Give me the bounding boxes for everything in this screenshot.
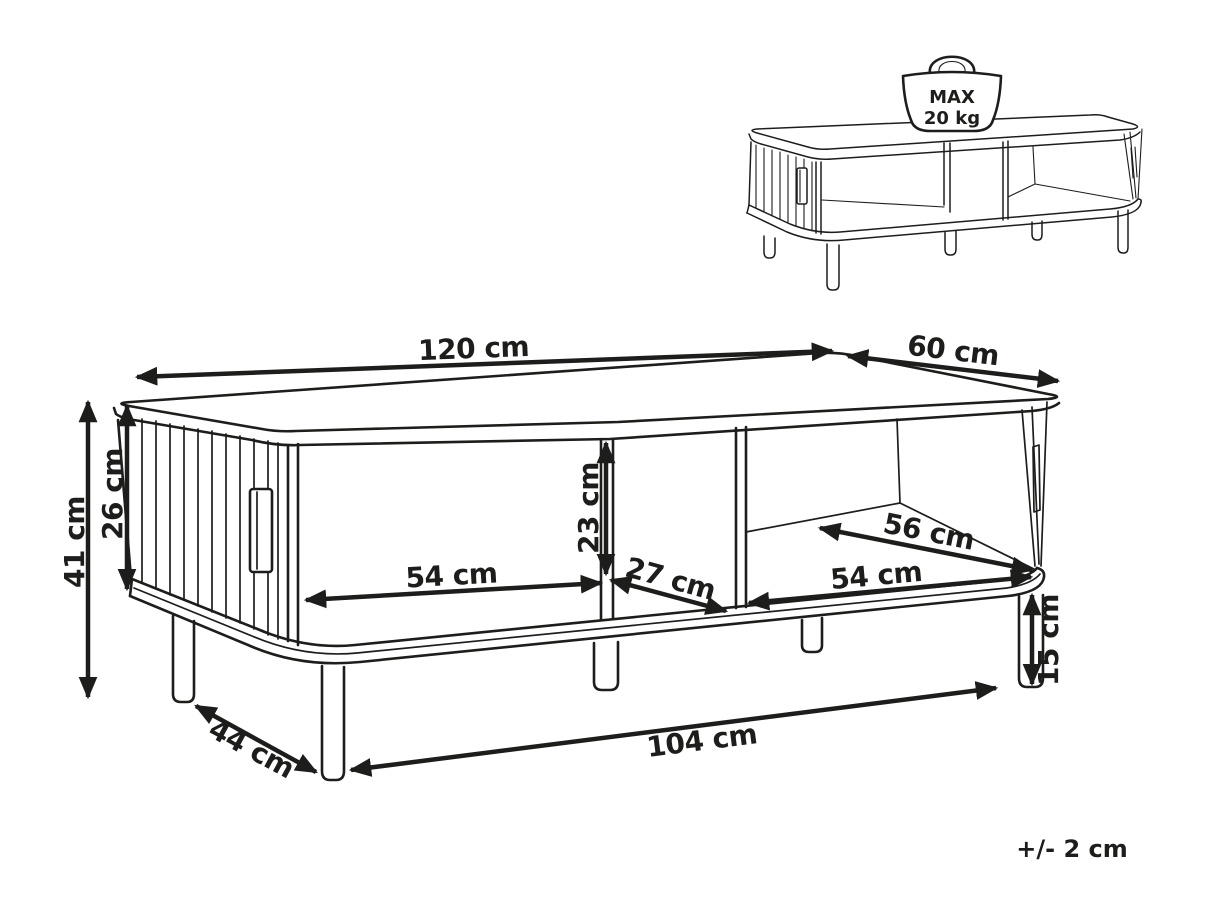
right-compartment-wall	[736, 427, 746, 608]
inset-right-door	[1124, 129, 1142, 199]
tolerance-note: +/- 2 cm	[1016, 835, 1127, 863]
dimension-height: 41 cm	[58, 402, 91, 697]
inset-legs	[764, 210, 1128, 290]
length-label: 120 cm	[418, 330, 530, 367]
max-load-view: MAX 20 kg	[747, 57, 1142, 290]
height-label: 41 cm	[58, 496, 91, 588]
dimension-leg-span-depth: 44 cm	[196, 706, 316, 785]
max-load-title: MAX	[929, 87, 975, 108]
body-height-label: 26 cm	[96, 448, 129, 540]
max-load-weight-icon: MAX 20 kg	[903, 57, 1001, 131]
leg-span-label: 104 cm	[645, 717, 759, 764]
dimension-depth: 60 cm	[848, 329, 1058, 381]
dimension-diagram: 120 cm 60 cm 41 cm 26 cm 23 cm 54 cm 27 …	[0, 0, 1214, 911]
dimension-center-gap: 27 cm	[611, 551, 726, 611]
inset-table-drawing	[747, 115, 1142, 290]
dimension-length: 120 cm	[137, 330, 832, 377]
leg-depth-label: 44 cm	[203, 712, 300, 785]
leg-front-left	[173, 616, 194, 702]
shelf-interior-edges	[746, 419, 1034, 569]
leg-back-mid	[802, 618, 822, 652]
door-handle	[250, 489, 272, 572]
right-door-sliver	[1022, 402, 1047, 566]
dimension-shelf-clearance: 15 cm	[1032, 594, 1065, 686]
center-gap-label: 27 cm	[622, 551, 719, 607]
door-front-edge	[288, 444, 298, 645]
opening-height-label: 23 cm	[572, 462, 605, 554]
dimension-left-opening-width: 54 cm	[306, 556, 601, 600]
left-opening-label: 54 cm	[405, 556, 499, 594]
furniture-dimension-sheet: 120 cm 60 cm 41 cm 26 cm 23 cm 54 cm 27 …	[0, 0, 1214, 911]
dimension-leg-span-length: 104 cm	[351, 688, 996, 770]
shelf-clearance-label: 15 cm	[1032, 594, 1065, 686]
table-legs	[173, 595, 1043, 780]
leg-back-center	[594, 642, 618, 690]
leg-front-center	[322, 666, 344, 780]
max-load-value: 20 kg	[924, 108, 980, 129]
dimension-opening-height: 23 cm	[572, 443, 606, 574]
dimension-body-height: 26 cm	[96, 406, 129, 589]
inset-door-handle	[797, 168, 807, 204]
